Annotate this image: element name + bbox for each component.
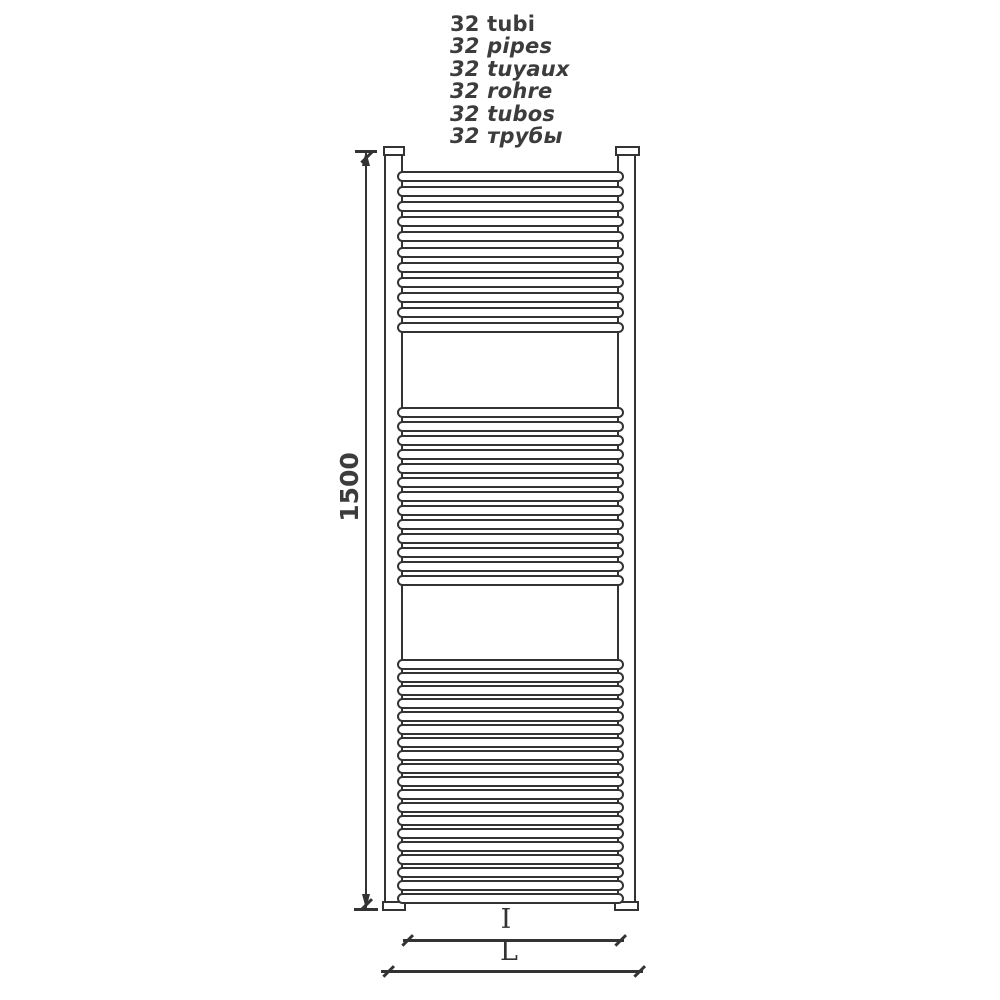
radiator-tube [397,519,624,530]
radiator-tube [397,854,624,865]
radiator-tube [397,449,624,460]
radiator-tube [397,841,624,852]
radiator-tube [397,763,624,774]
radiator-tube [397,867,624,878]
radiator-tube [397,407,624,418]
radiator-tube [397,262,624,273]
radiator-tube [397,307,624,318]
radiator-tube [397,247,624,258]
radiator-tube [397,737,624,748]
inner-width-dimension-label: I [486,906,526,934]
tube-count-label-3: 32 rohre [450,80,570,102]
radiator-tube [397,216,624,227]
radiator-tube [397,171,624,182]
radiator-tube [397,292,624,303]
overall-width-dimension-label: L [489,938,529,966]
radiator-tube [397,477,624,488]
radiator-tube [397,421,624,432]
radiator-tube [397,672,624,683]
radiator-left-top-cap [383,146,405,156]
radiator-tube [397,750,624,761]
radiator-tube [397,463,624,474]
height-dimension-value: 1500 [334,449,366,525]
radiator-tube [397,724,624,735]
tube-count-label-4: 32 tubos [450,103,570,125]
tube-count-label-2: 32 tuyaux [450,58,570,80]
radiator-tube [397,435,624,446]
radiator-tube [397,533,624,544]
radiator-tube [397,186,624,197]
radiator-tube [397,322,624,333]
radiator-technical-drawing: 32 tubi32 pipes32 tuyaux32 rohre32 tubos… [0,0,1000,1000]
radiator-tube [397,828,624,839]
radiator-tube [397,893,624,904]
tube-count-label-block: 32 tubi32 pipes32 tuyaux32 rohre32 tubos… [450,13,570,147]
radiator-tube [397,789,624,800]
radiator-tube [397,685,624,696]
radiator-tube [397,547,624,558]
radiator-tube [397,880,624,891]
radiator-tube [397,561,624,572]
radiator-tube [397,776,624,787]
height-dimension-line [365,153,367,908]
radiator-tube [397,711,624,722]
radiator-right-top-cap [615,146,640,156]
overall-width-dimension-line [381,970,643,973]
tube-count-label-5: 32 трубы [450,125,570,147]
radiator-tube [397,815,624,826]
radiator-tube [397,802,624,813]
radiator-tube [397,575,624,586]
tube-count-label-0: 32 tubi [450,13,570,35]
radiator-tube [397,231,624,242]
radiator-tube [397,698,624,709]
radiator-tube [397,277,624,288]
tube-count-label-1: 32 pipes [450,35,570,57]
radiator-tube [397,505,624,516]
radiator-tube [397,201,624,212]
radiator-tube [397,491,624,502]
radiator-tube [397,659,624,670]
